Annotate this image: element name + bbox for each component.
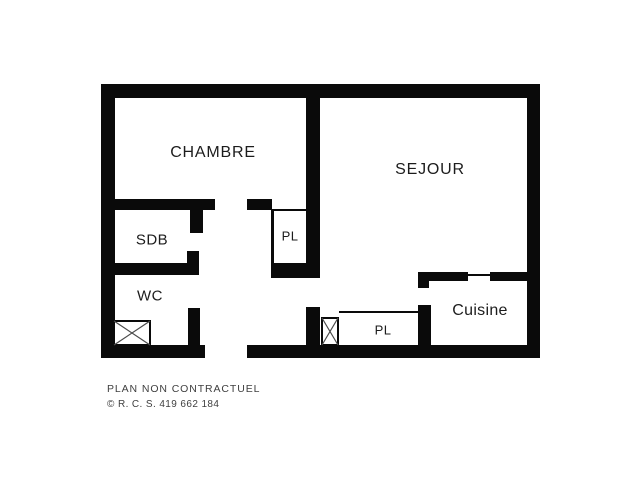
wall-outer-bottom-right bbox=[247, 345, 540, 358]
wall-cuisine-door-thin bbox=[468, 274, 490, 276]
wall-hall-right-lower bbox=[306, 307, 320, 345]
room-label-sdb: SDB bbox=[136, 233, 168, 248]
room-label-pl-lower: PL bbox=[375, 324, 392, 337]
wall-pl-lower-top-thin bbox=[339, 311, 418, 313]
wall-chambre-bottom-right bbox=[247, 199, 272, 210]
wall-outer-top bbox=[101, 84, 540, 98]
wall-chambre-bottom-left bbox=[101, 199, 215, 210]
wall-cuisine-left-stub bbox=[418, 272, 429, 288]
wall-sdb-wc-stub-up bbox=[187, 251, 199, 263]
wall-pl-upper-top-thin bbox=[274, 209, 306, 211]
hall-duct-crossed-box-icon bbox=[321, 317, 339, 346]
room-label-sejour: SEJOUR bbox=[395, 162, 465, 178]
wc-duct-crossed-box-icon bbox=[113, 320, 151, 346]
wall-cuisine-left bbox=[418, 305, 431, 345]
wall-cuisine-top-right bbox=[490, 272, 527, 281]
disclaimer-text: PLAN NON CONTRACTUEL bbox=[107, 383, 260, 395]
wall-sdb-wc-divider bbox=[101, 263, 199, 275]
registration-text: © R. C. S. 419 662 184 bbox=[107, 399, 219, 410]
wall-wc-right bbox=[188, 308, 200, 345]
wall-sdb-right-stub-upper bbox=[190, 210, 203, 233]
wall-pl-upper-bottom bbox=[271, 263, 306, 278]
wall-outer-right bbox=[527, 84, 540, 358]
room-label-wc: WC bbox=[137, 289, 163, 304]
wall-outer-left bbox=[101, 84, 115, 358]
floor-plan-page: CHAMBRE SEJOUR SDB PL WC PL Cuisine PLAN… bbox=[0, 0, 640, 494]
wall-pl-upper-left-thin bbox=[271, 209, 274, 264]
room-label-chambre: CHAMBRE bbox=[170, 145, 256, 161]
room-label-pl-upper: PL bbox=[282, 230, 299, 243]
wall-outer-bottom-left bbox=[101, 345, 205, 358]
wall-chambre-sejour-divider bbox=[306, 98, 320, 278]
room-label-cuisine: Cuisine bbox=[452, 303, 507, 319]
